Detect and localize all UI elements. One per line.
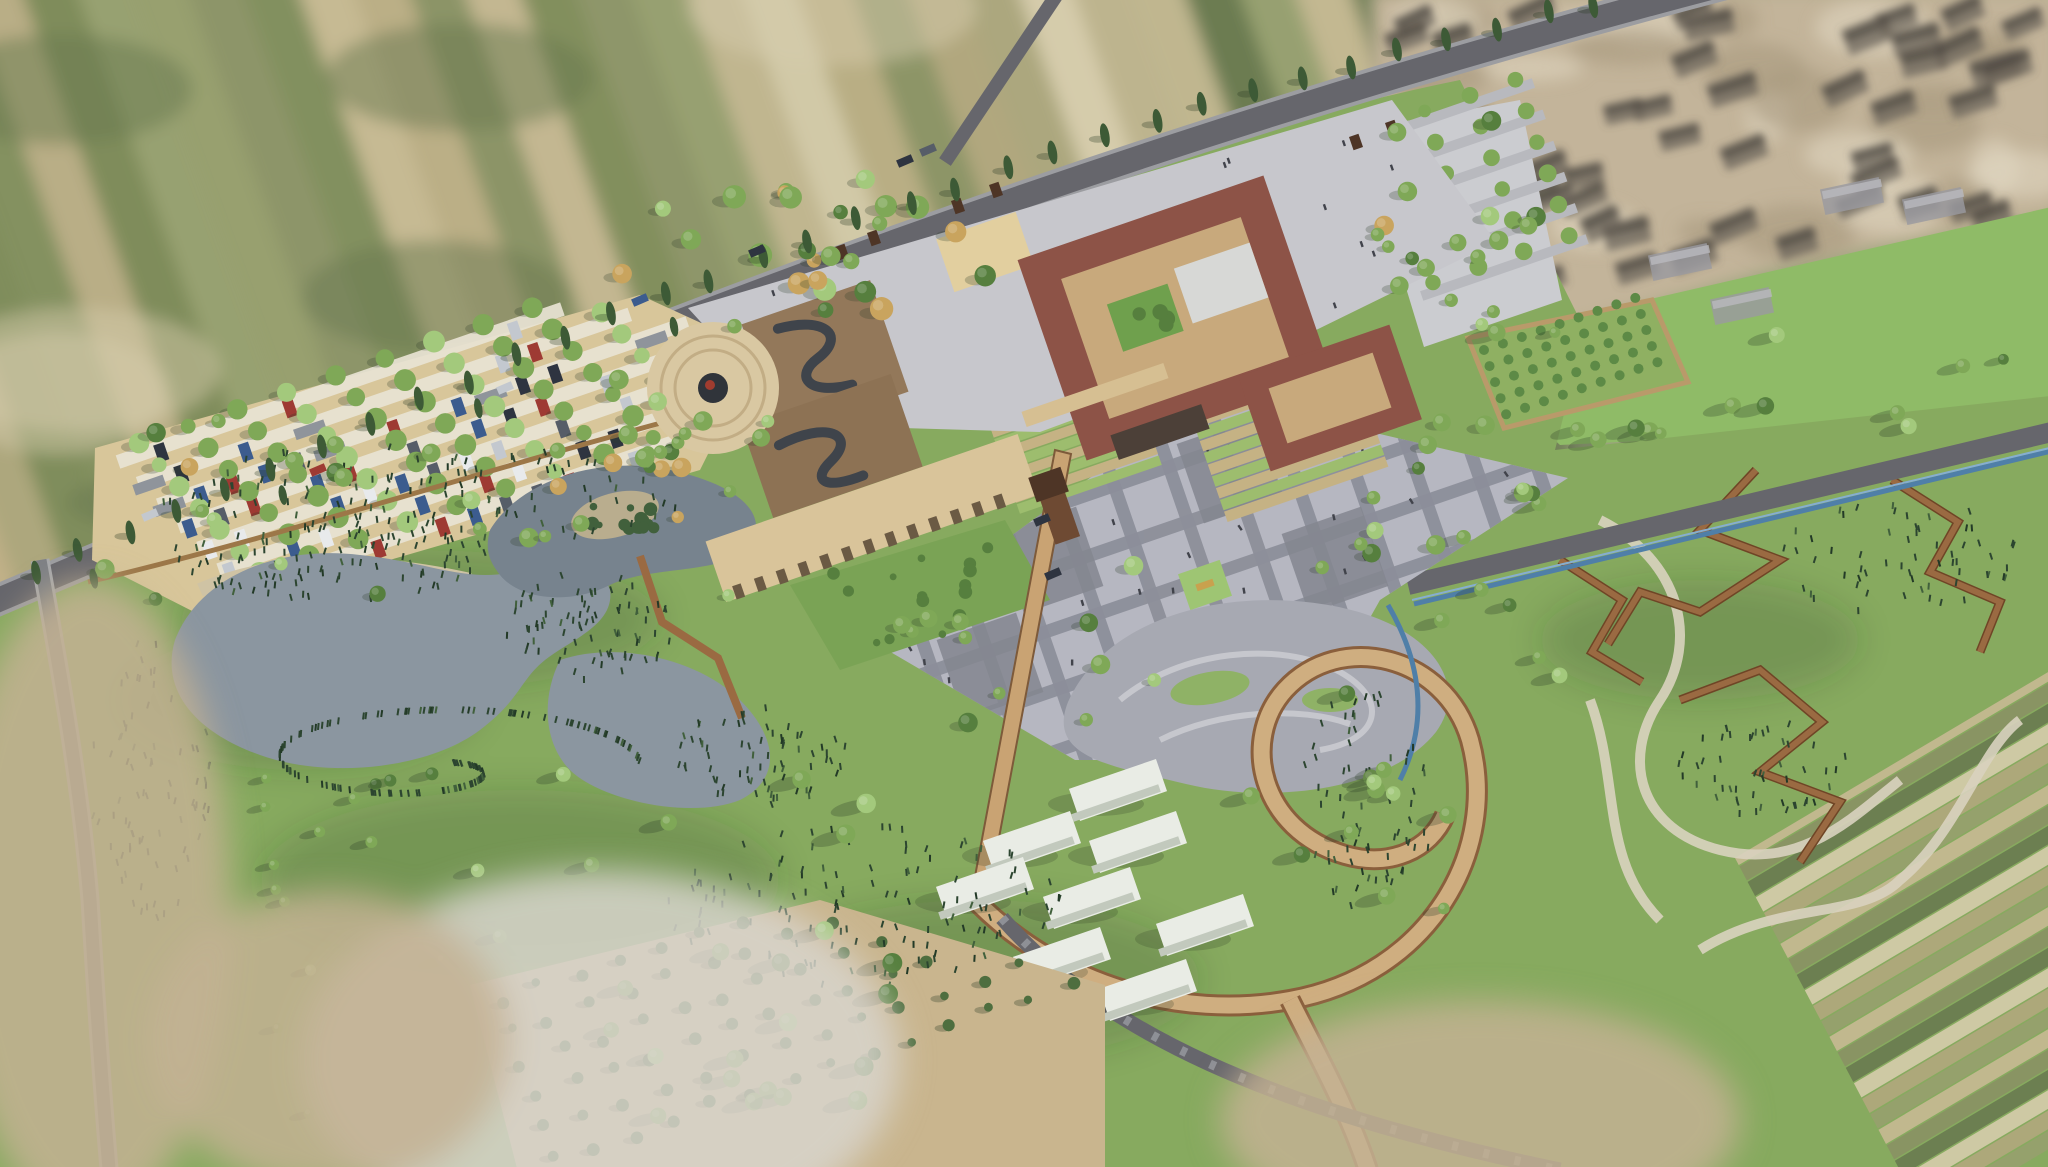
conifer — [2006, 564, 2008, 571]
tree-highlight — [674, 460, 683, 469]
conifer — [371, 476, 373, 483]
tree-highlight — [663, 816, 670, 823]
orchard-tree — [1560, 335, 1570, 345]
tree-highlight — [611, 372, 620, 381]
conifer — [840, 928, 842, 935]
garden-shrub — [982, 542, 993, 553]
tree-highlight — [754, 431, 762, 439]
conifer — [1320, 801, 1322, 808]
parking-tree — [238, 481, 258, 501]
conifer — [284, 741, 286, 748]
tree-highlight — [586, 859, 593, 866]
tree-highlight — [1572, 424, 1579, 431]
orchard-tree — [1479, 345, 1489, 355]
tree-highlight — [1472, 251, 1479, 258]
tree-highlight — [287, 454, 295, 462]
conifer — [254, 548, 256, 555]
conifer — [409, 487, 411, 494]
tree-highlight — [655, 447, 661, 453]
parking-tree — [612, 324, 631, 343]
conifer — [306, 776, 308, 783]
tree-highlight — [575, 517, 583, 525]
tree-highlight — [895, 618, 903, 626]
conifer — [286, 765, 288, 772]
tree-highlight — [1388, 788, 1395, 795]
tree-highlight — [424, 446, 432, 454]
tree-highlight — [790, 275, 800, 285]
tree-highlight — [350, 794, 355, 799]
secondary-lot-tree — [1561, 227, 1578, 244]
conifer — [975, 854, 977, 861]
tree-highlight — [1491, 233, 1500, 242]
orchard-tree — [1566, 351, 1576, 361]
conifer — [642, 477, 644, 484]
conifer — [169, 498, 171, 505]
tree-highlight — [680, 429, 686, 435]
conifer — [631, 582, 633, 589]
conifer — [1327, 850, 1329, 857]
tree-highlight — [1356, 539, 1362, 545]
parking-tree — [576, 425, 592, 441]
orchard-tree — [1585, 345, 1595, 355]
tree-highlight — [367, 837, 372, 842]
parking-tree — [634, 348, 650, 364]
tree-highlight — [1369, 524, 1377, 532]
tree-highlight — [724, 591, 730, 597]
tree-highlight — [881, 986, 890, 995]
tree-highlight — [995, 689, 1001, 695]
orchard-tree — [1541, 342, 1551, 352]
garden-shrub — [916, 594, 929, 607]
tree-highlight — [1630, 422, 1638, 430]
conifer — [913, 941, 915, 948]
parking-tree — [455, 434, 477, 456]
conifer — [1739, 810, 1741, 817]
conifer — [1958, 568, 1960, 575]
tree-highlight — [885, 955, 894, 964]
conifer — [805, 889, 807, 896]
tree-highlight — [1245, 789, 1253, 797]
tree-highlight — [1082, 616, 1090, 624]
orchard-tree — [1528, 364, 1538, 374]
parking-tree — [443, 353, 464, 374]
conifer — [302, 591, 304, 598]
tree-highlight — [763, 416, 769, 422]
secondary-lot-tree — [1483, 149, 1500, 166]
conifer — [759, 763, 761, 770]
tree-highlight — [1380, 889, 1388, 897]
tree-highlight — [149, 425, 158, 434]
secondary-lot-tree — [1495, 181, 1510, 196]
tree-highlight — [1400, 184, 1409, 193]
tree-highlight — [858, 172, 867, 181]
garden-shrub — [959, 585, 973, 599]
tree-highlight — [209, 514, 216, 521]
tree-highlight — [1296, 848, 1303, 855]
tree-highlight — [261, 803, 266, 808]
orchard-bottom-tree — [920, 956, 933, 969]
parking-tree — [423, 331, 445, 353]
tree-highlight — [1346, 827, 1353, 834]
conifer — [1755, 808, 1757, 815]
tree-highlight — [1903, 420, 1910, 427]
conifer — [402, 574, 404, 581]
tree-highlight — [725, 487, 731, 493]
parking-tree — [583, 363, 602, 382]
tree-highlight — [183, 460, 191, 468]
conifer — [739, 770, 741, 777]
conifer — [506, 632, 508, 639]
conifer — [451, 458, 453, 465]
tree-highlight — [1419, 261, 1427, 269]
orchard-tree — [1590, 361, 1600, 371]
tree-highlight — [922, 612, 930, 620]
tree-highlight — [427, 769, 433, 775]
conifer — [297, 772, 299, 779]
parking-tree — [376, 349, 394, 367]
conifer — [1344, 713, 1346, 720]
tree-highlight — [1592, 433, 1599, 440]
conifer — [444, 561, 446, 568]
tree-highlight — [272, 886, 277, 891]
conifer — [266, 538, 268, 545]
tree-highlight — [1529, 209, 1538, 218]
conifer — [918, 957, 920, 964]
orchard-bottom-tree — [940, 992, 949, 1001]
conifer — [776, 794, 778, 801]
secondary-lot-tree — [1425, 275, 1440, 290]
tree-highlight — [961, 715, 970, 724]
parking-tree — [307, 485, 329, 507]
tree-highlight — [1377, 218, 1386, 227]
parking-tree — [622, 405, 643, 426]
conifer — [772, 795, 774, 802]
parking-tree — [198, 438, 218, 458]
tree-highlight — [1149, 675, 1155, 681]
tree-highlight — [1554, 669, 1561, 676]
orchard-tree — [1490, 377, 1500, 387]
orchard-tree — [1634, 364, 1644, 374]
plaza-person — [1071, 659, 1073, 665]
tree-highlight — [97, 562, 106, 571]
tree-highlight — [615, 266, 624, 275]
orchard-tree — [1577, 383, 1587, 393]
tree-highlight — [1518, 484, 1524, 490]
conifer — [537, 648, 539, 655]
tree-highlight — [811, 273, 820, 282]
orchard-tree — [1547, 358, 1557, 368]
secondary-lot-tree — [1462, 87, 1479, 104]
tree-highlight — [270, 861, 275, 866]
orchard-tree — [1592, 306, 1602, 316]
conifer — [289, 767, 291, 774]
conifer — [1360, 803, 1362, 810]
tree-highlight — [1534, 652, 1540, 658]
tree-highlight — [1483, 209, 1491, 217]
tree-highlight — [1477, 320, 1483, 326]
tree-highlight — [1081, 715, 1087, 721]
garden-shrub — [843, 585, 854, 596]
conifer — [304, 523, 306, 530]
tree-highlight — [782, 189, 792, 199]
parking-tree — [277, 383, 296, 402]
conifer — [1900, 562, 1902, 569]
conifer — [826, 749, 828, 756]
courtyard-tree — [1159, 317, 1174, 332]
tree-highlight — [1441, 808, 1449, 816]
orchard-bottom-tree — [876, 936, 887, 947]
tree-highlight — [1446, 295, 1452, 301]
garden-shrub — [963, 564, 977, 578]
aerial-site-rendering — [0, 0, 2048, 1167]
island-shrub — [637, 522, 649, 534]
island-shrub — [596, 522, 603, 529]
scene-canvas — [0, 0, 2048, 1167]
parking-tree — [646, 430, 661, 445]
garden-shrub — [939, 630, 947, 638]
tree-highlight — [1378, 764, 1385, 771]
conifer — [1915, 529, 1917, 536]
tree-highlight — [673, 512, 679, 518]
conifer — [881, 823, 883, 830]
conifer — [294, 770, 296, 777]
orchard-tree — [1630, 293, 1640, 303]
orchard-tree — [1520, 403, 1530, 413]
conifer — [1423, 829, 1425, 836]
conifer — [1317, 784, 1319, 791]
conifer — [654, 630, 656, 637]
conifer — [956, 896, 958, 903]
parking-tree — [534, 379, 554, 399]
orchard-tree — [1558, 390, 1568, 400]
field-blotch — [326, 23, 594, 131]
conifer — [581, 595, 583, 602]
conifer — [694, 869, 696, 876]
parking-tree — [248, 421, 267, 440]
island-shrub — [627, 504, 634, 511]
conifer — [1412, 744, 1414, 751]
tree-highlight — [1478, 418, 1487, 427]
orchard-tree — [1571, 367, 1581, 377]
secondary-lot-tree — [1518, 103, 1535, 120]
orchard-bottom-tree — [943, 1019, 955, 1031]
parking-tree — [554, 402, 573, 421]
garden-shrub — [884, 634, 894, 644]
orchard-bottom-tree — [1014, 958, 1023, 967]
conifer — [1387, 853, 1389, 860]
tree-highlight — [1656, 429, 1661, 434]
conifer — [1696, 781, 1698, 788]
orchard-tree — [1641, 325, 1651, 335]
island-shrub — [590, 503, 598, 511]
tree-highlight — [835, 207, 842, 214]
tree-highlight — [655, 463, 663, 471]
parking-tree — [542, 319, 564, 341]
orchard-tree — [1501, 409, 1511, 419]
tree-highlight — [315, 827, 320, 832]
conifer — [624, 654, 626, 661]
orchard-bottom-tree — [984, 1003, 993, 1012]
conifer — [1810, 591, 1812, 598]
tree-highlight — [696, 414, 705, 423]
conifer — [239, 489, 241, 496]
parking-tree — [356, 468, 377, 489]
tree-highlight — [683, 232, 692, 241]
conifer — [645, 617, 647, 624]
conifer — [973, 955, 975, 962]
parking-tree — [522, 297, 543, 318]
conifer — [767, 752, 769, 759]
tree-highlight — [960, 632, 966, 638]
tree-highlight — [1999, 355, 2004, 360]
tree-highlight — [1368, 493, 1374, 499]
conifer — [1842, 511, 1844, 518]
secondary-lot-tree — [1427, 134, 1444, 151]
conifer — [1714, 775, 1716, 782]
conifer — [684, 762, 686, 769]
conifer — [460, 526, 462, 533]
conifer — [469, 567, 471, 574]
tree-highlight — [795, 773, 803, 781]
conifer — [701, 740, 703, 747]
tree-highlight — [336, 470, 344, 478]
tree-highlight — [1341, 687, 1348, 694]
parking-tree — [472, 314, 493, 335]
garden-shrub — [918, 555, 926, 563]
orchard-tree — [1622, 332, 1632, 342]
tree-highlight — [213, 416, 219, 422]
conifer — [772, 730, 774, 737]
orchard-tree — [1515, 387, 1525, 397]
orchard-tree — [1509, 371, 1519, 381]
orchard-bottom-tree — [979, 976, 991, 988]
conifer — [1346, 845, 1348, 852]
conifer — [583, 676, 585, 683]
orchard-tree — [1552, 374, 1562, 384]
parking-tree — [326, 365, 346, 385]
tree-highlight — [521, 530, 530, 539]
parking-tree — [493, 336, 514, 357]
conifer — [289, 531, 291, 538]
tree-highlight — [606, 456, 614, 464]
orchard-tree — [1615, 370, 1625, 380]
secondary-lot-tree — [1539, 164, 1557, 182]
conifer — [352, 558, 354, 565]
tree-highlight — [552, 480, 560, 488]
conifer — [387, 533, 389, 540]
orchard-tree — [1617, 315, 1627, 325]
tree-highlight — [1407, 253, 1413, 259]
tree-highlight — [1414, 463, 1420, 469]
conifer — [290, 735, 292, 742]
hill-shadow — [1540, 580, 1860, 700]
orchard-tree — [1609, 354, 1619, 364]
conifer — [455, 555, 457, 562]
tree-highlight — [621, 428, 630, 437]
conifer — [929, 855, 931, 862]
orchard-tree — [1485, 361, 1495, 371]
conifer — [758, 890, 760, 897]
tree-highlight — [1390, 125, 1398, 133]
tree-highlight — [729, 321, 736, 328]
tree-highlight — [475, 524, 481, 530]
tree-highlight — [371, 588, 378, 595]
tree-highlight — [1435, 416, 1443, 424]
tree-highlight — [1368, 776, 1375, 783]
secondary-lot-tree — [1515, 243, 1533, 261]
parking-tree — [394, 369, 416, 391]
tree-highlight — [540, 532, 546, 538]
orchard-bottom-tree — [892, 1001, 905, 1014]
conifer — [589, 495, 591, 502]
tree-highlight — [1957, 360, 1964, 367]
tree-highlight — [1372, 230, 1378, 236]
conifer — [1702, 734, 1704, 741]
parking-tree — [259, 503, 277, 521]
tree-highlight — [1489, 307, 1495, 313]
garden-shrub — [873, 639, 880, 646]
tree-highlight — [1093, 657, 1102, 666]
parking-tree — [496, 479, 515, 498]
tree-highlight — [1759, 399, 1767, 407]
tree-highlight — [845, 255, 852, 262]
orchard-tree — [1628, 348, 1638, 358]
conifer — [511, 453, 513, 460]
island-shrub — [618, 519, 630, 531]
tree-highlight — [948, 224, 958, 234]
conifer — [1795, 527, 1797, 534]
tree-highlight — [1892, 407, 1899, 414]
conifer — [545, 611, 547, 618]
tree-highlight — [1551, 328, 1556, 333]
secondary-lot-tree — [1418, 105, 1431, 118]
conifer — [1390, 754, 1392, 761]
tree-highlight — [552, 445, 559, 452]
tree-highlight — [465, 493, 473, 501]
conifer — [743, 711, 745, 718]
conifer — [407, 516, 409, 523]
tree-highlight — [1317, 562, 1323, 568]
orchard-tree — [1611, 299, 1621, 309]
tree-highlight — [1451, 236, 1459, 244]
orchard-tree — [1496, 393, 1506, 403]
orchard-tree — [1647, 341, 1657, 351]
conifer — [461, 490, 463, 497]
tree-highlight — [1727, 399, 1734, 406]
conifer — [1749, 734, 1751, 741]
tree-highlight — [1522, 219, 1530, 227]
tree-highlight — [1476, 584, 1483, 591]
conifer — [1339, 794, 1341, 801]
conifer — [237, 475, 239, 482]
conifer — [283, 761, 285, 768]
tree-highlight — [954, 615, 962, 623]
tree-highlight — [874, 218, 881, 225]
courtyard-tree — [1133, 307, 1146, 320]
tree-highlight — [262, 775, 267, 780]
conifer — [263, 546, 265, 553]
conifer — [307, 566, 309, 573]
tree-highlight — [276, 559, 282, 565]
garden-shrub — [827, 567, 840, 580]
conifer — [1755, 729, 1757, 736]
conifer — [533, 637, 535, 644]
tree-highlight — [1458, 532, 1465, 539]
conifer — [798, 746, 800, 753]
tree-highlight — [558, 769, 565, 776]
tree-highlight — [386, 776, 392, 782]
tree-highlight — [150, 594, 156, 600]
